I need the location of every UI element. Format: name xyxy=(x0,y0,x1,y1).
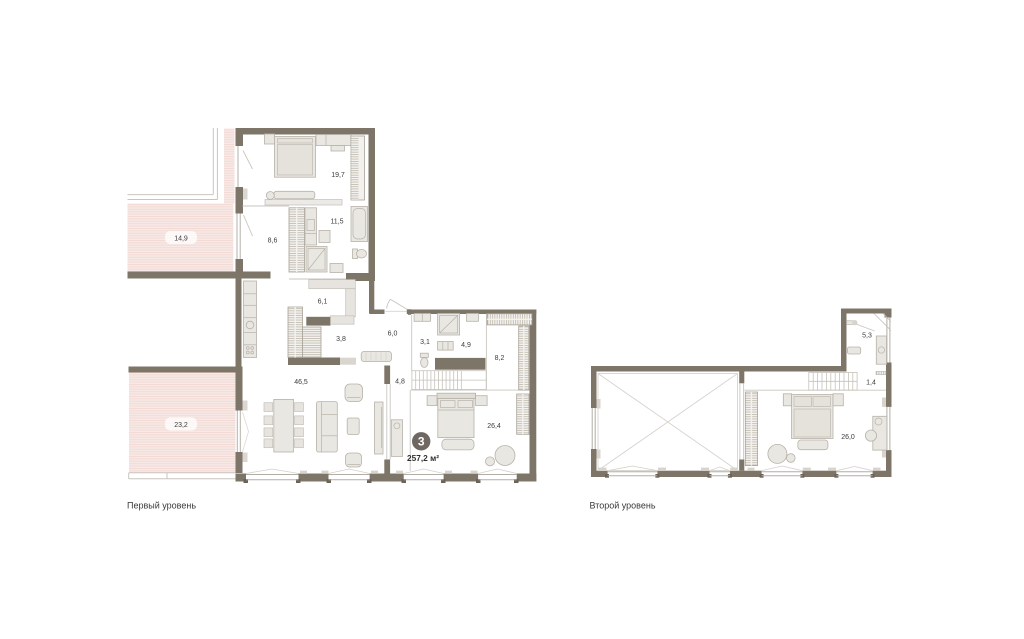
svg-text:8,6: 8,6 xyxy=(268,238,278,245)
svg-text:14,9: 14,9 xyxy=(174,236,188,243)
svg-text:Первый уровень: Первый уровень xyxy=(127,501,196,511)
svg-text:19,7: 19,7 xyxy=(331,172,345,179)
svg-text:46,5: 46,5 xyxy=(294,379,308,386)
svg-text:3,1: 3,1 xyxy=(420,339,430,346)
svg-text:6,0: 6,0 xyxy=(388,331,398,338)
svg-text:Второй уровень: Второй уровень xyxy=(590,501,656,511)
svg-text:4,9: 4,9 xyxy=(461,342,471,349)
svg-text:26,4: 26,4 xyxy=(487,423,501,430)
svg-text:6,1: 6,1 xyxy=(318,299,328,306)
svg-text:3,8: 3,8 xyxy=(336,336,346,343)
svg-text:3: 3 xyxy=(418,435,425,449)
svg-text:8,2: 8,2 xyxy=(495,355,505,362)
svg-text:1,4: 1,4 xyxy=(866,380,876,387)
svg-text:4,8: 4,8 xyxy=(395,379,405,386)
svg-text:26,0: 26,0 xyxy=(841,434,855,441)
svg-text:23,2: 23,2 xyxy=(174,422,188,429)
svg-text:5,3: 5,3 xyxy=(862,333,872,340)
svg-text:257,2 м²: 257,2 м² xyxy=(407,453,439,463)
svg-text:11,5: 11,5 xyxy=(330,219,343,226)
